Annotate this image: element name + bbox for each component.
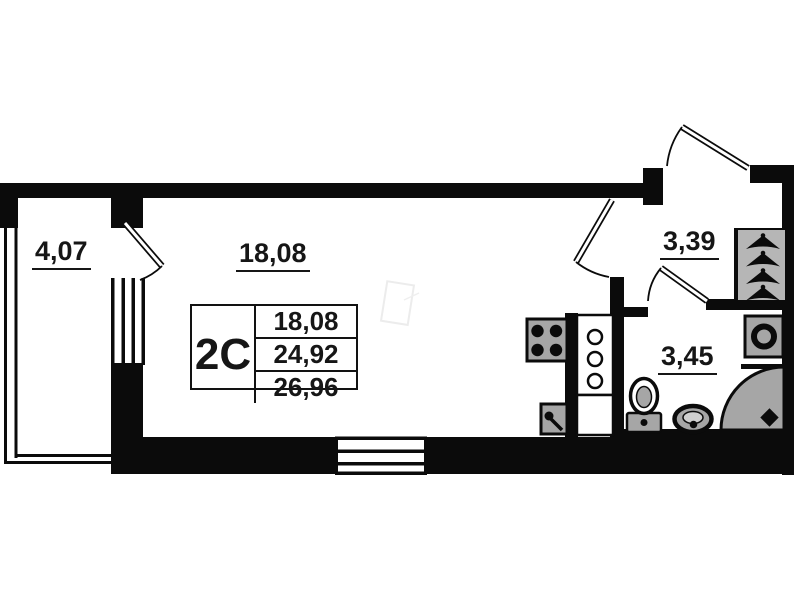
living-hall-door <box>576 200 612 277</box>
kitchen-sink-icon <box>541 404 567 434</box>
wall-bottom-right <box>424 437 794 474</box>
balcony-wall-inner-left <box>15 226 18 458</box>
balcony-window-line <box>132 278 136 365</box>
wall-bathroom-top-left <box>610 307 648 317</box>
watermark <box>381 281 419 325</box>
room-window-line <box>335 437 427 441</box>
wardrobe-icon <box>737 229 786 301</box>
total-area-cell: 26,96 <box>256 372 356 403</box>
balcony-wall-outer-bottom <box>4 461 114 464</box>
toilet-icon <box>627 379 661 433</box>
balcony-area-label: 4,07 <box>32 236 91 270</box>
balcony-door <box>125 223 162 280</box>
entrance-door <box>667 127 748 168</box>
living-area-label: 18,08 <box>236 238 310 272</box>
apartment-area-cell: 24,92 <box>256 339 356 372</box>
shower-icon <box>721 364 784 430</box>
balcony-window-line <box>122 278 126 365</box>
living-area-cell: 18,08 <box>256 306 356 339</box>
floor-plan: 4,07 18,08 3,39 3,45 2С 18,08 24,92 26,9… <box>0 0 799 600</box>
balcony-window-line <box>142 278 146 365</box>
balcony-area-value: 4,07 <box>32 236 91 270</box>
hallway-area-value: 3,39 <box>660 226 719 260</box>
apartment-info-table: 2С 18,08 24,92 26,96 <box>190 304 358 390</box>
ventilation-shaft <box>577 315 613 435</box>
balcony-wall-outer-left <box>4 226 7 464</box>
unit-type-cell: 2С <box>192 306 256 403</box>
stove-icon <box>527 319 567 361</box>
wall-bottom-left <box>111 437 338 474</box>
wall-balcony-corner <box>0 183 18 228</box>
bathroom-area-label: 3,45 <box>658 341 717 375</box>
washbasin-icon <box>675 406 712 432</box>
room-window-line <box>335 462 427 466</box>
bathroom-area-value: 3,45 <box>658 341 717 375</box>
wall-entry-step <box>643 168 663 205</box>
balcony-wall-inner-bottom <box>15 454 114 457</box>
walls <box>0 165 794 475</box>
floor-plan-drawing <box>0 0 799 600</box>
wall-balcony-lower <box>111 363 143 438</box>
washing-machine-icon <box>745 316 783 357</box>
hallway-area-label: 3,39 <box>660 226 719 260</box>
wall-top <box>0 183 646 198</box>
living-area-value: 18,08 <box>236 238 310 272</box>
room-window-line <box>335 472 427 476</box>
balcony-window-line <box>111 278 115 365</box>
bathroom-door <box>648 268 707 301</box>
room-window-line <box>335 450 427 454</box>
